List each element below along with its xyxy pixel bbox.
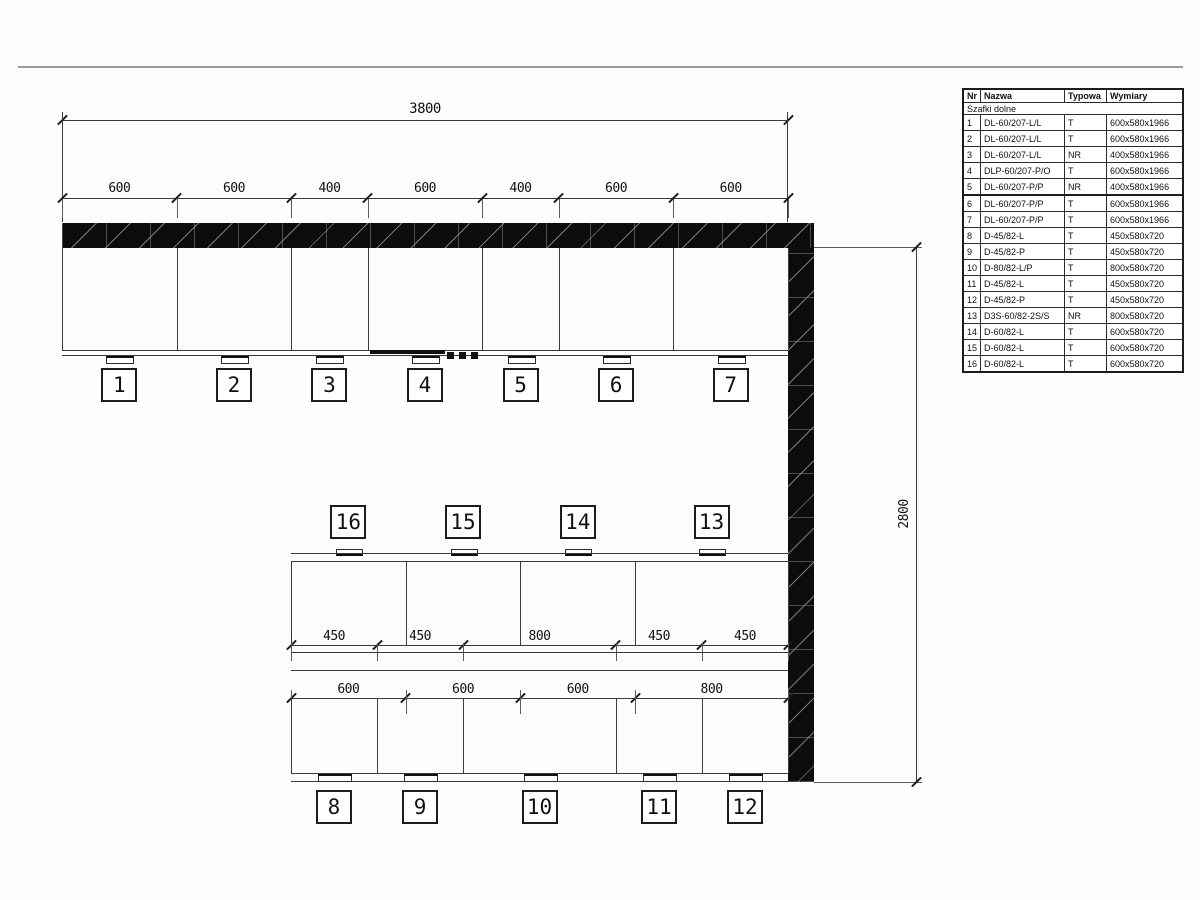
dim-label: 600 [108, 182, 130, 195]
dim-line-600-row [291, 698, 788, 699]
extension-line [814, 782, 922, 783]
type-cell: T [1065, 292, 1107, 308]
cabinet-foot [412, 356, 440, 364]
extension-stub [406, 690, 407, 714]
extension-stub [673, 199, 674, 218]
counter-top-edge [291, 561, 788, 562]
extension-stub [788, 643, 789, 661]
cabinet-foot [508, 356, 536, 364]
cabinet-number-label: 4 [407, 368, 443, 402]
table-header-cell: Wymiary [1107, 89, 1183, 103]
dim-label: 600 [452, 683, 474, 696]
cabinet-number-label: 1 [101, 368, 137, 402]
row-number-cell: 12 [963, 292, 981, 308]
row-number-cell: 2 [963, 131, 981, 147]
cabinet-number-label: 11 [641, 790, 677, 824]
type-cell: NR [1065, 179, 1107, 196]
cabinet-number-label: 15 [445, 505, 481, 539]
type-cell: T [1065, 356, 1107, 373]
cabinet-divider [482, 248, 483, 350]
dim-line-2800 [916, 247, 917, 782]
extension-stub [177, 199, 178, 218]
table-row: 16D-60/82-LT600x580x720 [963, 356, 1183, 373]
cabinet-divider [788, 698, 789, 773]
type-cell: T [1065, 276, 1107, 292]
type-cell: T [1065, 115, 1107, 131]
cabinet-divider [62, 248, 63, 350]
cabinet-number-label: 9 [402, 790, 438, 824]
counter-joint-line [291, 670, 788, 671]
cabinet-name-cell: DLP-60/207-P/O [981, 163, 1065, 179]
cabinet-divider [788, 248, 789, 350]
cabinet-foot [718, 356, 746, 364]
cabinet-name-cell: D-60/82-L [981, 356, 1065, 373]
dim-label: 600 [223, 182, 245, 195]
extension-stub [368, 199, 369, 218]
extension-stub [635, 690, 636, 714]
cabinet-name-cell: D-60/82-L [981, 340, 1065, 356]
cad-kitchen-elevation-drawing: NrNazwaTypowaWymiary Szafki dolne1DL-60/… [0, 0, 1200, 900]
wall-top [62, 223, 814, 248]
table-row: 2DL-60/207-L/LT600x580x1966 [963, 131, 1183, 147]
page-border-line [18, 66, 1183, 68]
cabinet-divider [368, 248, 369, 350]
dimensions-cell: 600x580x1966 [1107, 131, 1183, 147]
dimensions-cell: 600x580x720 [1107, 340, 1183, 356]
dimensions-cell: 800x580x720 [1107, 308, 1183, 324]
cabinet-divider [377, 698, 378, 773]
table-section-title: Szafki dolne [963, 103, 1183, 115]
type-cell: NR [1065, 308, 1107, 324]
cabinet-name-cell: D-45/82-P [981, 244, 1065, 260]
table-header-cell: Nazwa [981, 89, 1065, 103]
extension-stub [788, 199, 789, 218]
extension-stub [291, 199, 292, 218]
cabinet-number-label: 5 [503, 368, 539, 402]
cabinet-divider [702, 698, 703, 773]
cabinet-number-label: 8 [316, 790, 352, 824]
table-row: 4DLP-60/207-P/OT600x580x1966 [963, 163, 1183, 179]
dimensions-cell: 600x580x1966 [1107, 212, 1183, 228]
type-cell: T [1065, 195, 1107, 212]
cabinet-number-label: 12 [727, 790, 763, 824]
cabinet-divider [463, 698, 464, 773]
row-number-cell: 3 [963, 147, 981, 163]
spec-table-body: Szafki dolne1DL-60/207-L/LT600x580x19662… [963, 103, 1183, 373]
cabinet-foot [318, 774, 352, 782]
cabinet-divider [673, 248, 674, 350]
extension-line [814, 247, 922, 248]
cabinet-number-label: 3 [311, 368, 347, 402]
spec-table-header: NrNazwaTypowaWymiary [963, 89, 1183, 103]
cabinet-number-label: 13 [694, 505, 730, 539]
table-header-cell: Typowa [1065, 89, 1107, 103]
cabinet-foot [404, 774, 438, 782]
extension-stub [62, 199, 63, 218]
cabinet-number-label: 6 [598, 368, 634, 402]
row-number-cell: 16 [963, 356, 981, 373]
table-row: 14D-60/82-LT600x580x720 [963, 324, 1183, 340]
table-row: 1DL-60/207-L/LT600x580x1966 [963, 115, 1183, 131]
cabinet-divider [291, 248, 292, 350]
dimensions-cell: 600x580x720 [1107, 324, 1183, 340]
cabinet-divider [291, 698, 292, 773]
dimensions-cell: 600x580x720 [1107, 356, 1183, 373]
cabinet-number-label: 14 [560, 505, 596, 539]
type-cell: T [1065, 163, 1107, 179]
cabinet-divider [616, 698, 617, 773]
cabinet-number-label: 16 [330, 505, 366, 539]
table-header-cell: Nr [963, 89, 981, 103]
dimensions-cell: 600x580x1966 [1107, 115, 1183, 131]
row-number-cell: 11 [963, 276, 981, 292]
type-cell: T [1065, 260, 1107, 276]
cabinet-name-cell: D-80/82-L/P [981, 260, 1065, 276]
counter-top-edge [291, 553, 788, 554]
row-number-cell: 1 [963, 115, 981, 131]
dimensions-cell: 450x580x720 [1107, 228, 1183, 244]
cabinet-foot [603, 356, 631, 364]
dim-label: 600 [337, 683, 359, 696]
cabinet-name-cell: DL-60/207-P/P [981, 179, 1065, 196]
cooktop-knob [471, 352, 478, 359]
table-row: 3DL-60/207-L/LNR400x580x1966 [963, 147, 1183, 163]
dim-label: 3800 [409, 103, 441, 116]
dimensions-cell: 450x580x720 [1107, 276, 1183, 292]
cabinet-foot [106, 356, 134, 364]
dim-line-top-segments [62, 198, 788, 199]
dim-label: 450 [323, 630, 345, 643]
cabinet-name-cell: D-45/82-P [981, 292, 1065, 308]
cabinet-number-label: 2 [216, 368, 252, 402]
row-number-cell: 7 [963, 212, 981, 228]
cabinet-number-label: 7 [713, 368, 749, 402]
table-row: 11D-45/82-LT450x580x720 [963, 276, 1183, 292]
cabinet-foot [643, 774, 677, 782]
dim-line-3800 [62, 120, 788, 121]
cabinet-name-cell: D-60/82-L [981, 324, 1065, 340]
cabinet-name-cell: DL-60/207-P/P [981, 195, 1065, 212]
table-row: 9D-45/82-PT450x580x720 [963, 244, 1183, 260]
extension-stub [482, 199, 483, 218]
dim-label: 600 [567, 683, 589, 696]
cabinet-divider [291, 561, 292, 645]
cabinet-foot [221, 356, 249, 364]
cabinet-divider [635, 561, 636, 645]
row-number-cell: 8 [963, 228, 981, 244]
table-header-row: NrNazwaTypowaWymiary [963, 89, 1183, 103]
row-number-cell: 4 [963, 163, 981, 179]
dim-label-vertical: 2800 [898, 492, 912, 536]
cabinet-divider [788, 561, 789, 645]
cabinet-number-label: 10 [522, 790, 558, 824]
dim-label: 450 [734, 630, 756, 643]
cabinet-divider [559, 248, 560, 350]
cabinet-divider [406, 561, 407, 645]
dim-label: 450 [648, 630, 670, 643]
cooktop-knob [447, 352, 454, 359]
extension-stub [559, 199, 560, 218]
dim-label: 600 [414, 182, 436, 195]
cabinet-name-cell: D-45/82-L [981, 276, 1065, 292]
dimensions-cell: 450x580x720 [1107, 292, 1183, 308]
type-cell: T [1065, 340, 1107, 356]
dim-label: 800 [529, 630, 551, 643]
cabinet-name-cell: DL-60/207-L/L [981, 131, 1065, 147]
dimensions-cell: 450x580x720 [1107, 244, 1183, 260]
dimensions-cell: 600x580x1966 [1107, 195, 1183, 212]
table-row: 5DL-60/207-P/PNR400x580x1966 [963, 179, 1183, 196]
table-row: 7DL-60/207-P/PT600x580x1966 [963, 212, 1183, 228]
dimensions-cell: 400x580x1966 [1107, 179, 1183, 196]
cabinet-divider [177, 248, 178, 350]
cabinet-foot [729, 774, 763, 782]
type-cell: T [1065, 324, 1107, 340]
row-number-cell: 15 [963, 340, 981, 356]
extension-stub [520, 690, 521, 714]
dim-label: 600 [720, 182, 742, 195]
dimensions-cell: 400x580x1966 [1107, 147, 1183, 163]
wall-right [788, 248, 814, 782]
cabinet-name-cell: DL-60/207-P/P [981, 212, 1065, 228]
dim-label: 800 [701, 683, 723, 696]
cabinet-spec-table: NrNazwaTypowaWymiary Szafki dolne1DL-60/… [962, 88, 1184, 373]
type-cell: T [1065, 212, 1107, 228]
table-row: 6DL-60/207-P/PT600x580x1966 [963, 195, 1183, 212]
cooktop-front [370, 350, 445, 354]
cooktop-knob [459, 352, 466, 359]
row-number-cell: 6 [963, 195, 981, 212]
dimensions-cell: 800x580x720 [1107, 260, 1183, 276]
type-cell: T [1065, 131, 1107, 147]
cabinet-foot [316, 356, 344, 364]
table-row: 12D-45/82-PT450x580x720 [963, 292, 1183, 308]
row-number-cell: 9 [963, 244, 981, 260]
dim-label: 400 [510, 182, 532, 195]
table-row: 13D3S-60/82-2S/SNR800x580x720 [963, 308, 1183, 324]
table-section-row: Szafki dolne [963, 103, 1183, 115]
dim-label: 400 [318, 182, 340, 195]
dim-label: 600 [605, 182, 627, 195]
cabinet-name-cell: DL-60/207-L/L [981, 147, 1065, 163]
table-row: 15D-60/82-LT600x580x720 [963, 340, 1183, 356]
dimensions-cell: 600x580x1966 [1107, 163, 1183, 179]
row-number-cell: 13 [963, 308, 981, 324]
type-cell: T [1065, 228, 1107, 244]
dim-label: 450 [409, 630, 431, 643]
dim-line-450-row [291, 645, 788, 646]
cabinet-divider [520, 561, 521, 645]
table-row: 10D-80/82-L/PT800x580x720 [963, 260, 1183, 276]
row-number-cell: 10 [963, 260, 981, 276]
type-cell: NR [1065, 147, 1107, 163]
cabinet-name-cell: DL-60/207-L/L [981, 115, 1065, 131]
counter-joint-line [291, 652, 788, 653]
cabinet-foot [524, 774, 558, 782]
row-number-cell: 14 [963, 324, 981, 340]
row-number-cell: 5 [963, 179, 981, 196]
type-cell: T [1065, 244, 1107, 260]
table-row: 8D-45/82-LT450x580x720 [963, 228, 1183, 244]
cabinet-name-cell: D3S-60/82-2S/S [981, 308, 1065, 324]
cabinet-name-cell: D-45/82-L [981, 228, 1065, 244]
